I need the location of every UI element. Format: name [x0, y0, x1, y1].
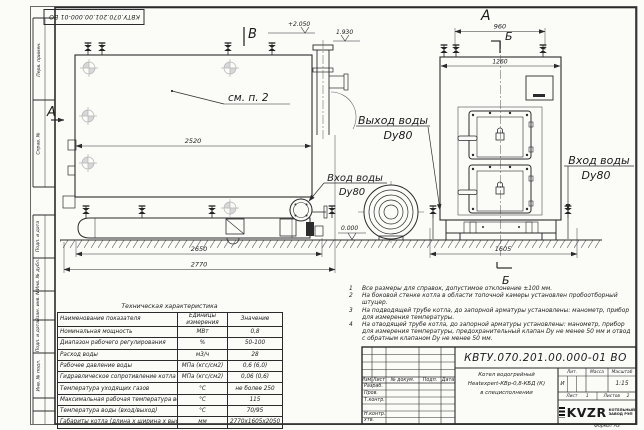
table-row: Температура воды (вход/выход)°С70/95	[58, 406, 283, 417]
outlet-dn: Dy80	[384, 129, 413, 142]
table-row: Диапазон рабочего регулирования%50-100	[58, 338, 283, 349]
inlet-label-side: Вход воды	[327, 173, 383, 184]
tech-table: Наименование показателя Единицы измерени…	[57, 312, 283, 429]
tb-row-tkontr: Т.контр.	[364, 397, 394, 404]
margin-cell-inv-podl: Инв. № подл.	[33, 353, 45, 398]
table-row: Гидравлическое сопротивление котлаМПа (к…	[58, 372, 283, 383]
note-2: 2На боковой стенке котла в области топоч…	[349, 293, 633, 307]
margin-cell-vzam-inv: Взам. инв. №	[33, 291, 45, 320]
product-name: Котел водогрейный Heatexpert-КВр-0,8-КБД…	[456, 369, 557, 400]
margin-cell-podp-data-2: Подп. и дата	[33, 320, 45, 353]
table-row: Расход водым3/ч28	[58, 349, 283, 360]
margin-cell-inv-dubl: Инв. № дубл.	[33, 258, 45, 291]
top-stamp-doc-number: КВТУ.070.201.00.000-01 ВО	[44, 9, 144, 24]
view-label-a-front: А	[480, 8, 491, 24]
tb-col-data: Дата	[441, 377, 455, 383]
doc-number: КВТУ.070.201.00.000-01 ВО	[456, 348, 635, 367]
inlet-dn-front: Dy80	[582, 169, 611, 182]
tb-mass-label: Масса	[586, 368, 608, 376]
table-row: Температура уходящих газов°Сне более 250	[58, 383, 283, 394]
tb-scale-value: 1:15	[608, 376, 636, 392]
view-label-a-left: А	[46, 105, 56, 120]
table-row: Максимальная рабочая температура воды°С1…	[58, 394, 283, 405]
tb-row-blank	[364, 404, 394, 411]
tb-row-razrab: Разраб.	[364, 383, 394, 390]
logo-bars-icon	[559, 407, 565, 418]
logo-text: KVZR	[567, 405, 607, 420]
table-row: Габариты котла (длина х ширина х высота)…	[58, 417, 283, 428]
outlet-label: Выход воды	[358, 114, 428, 127]
tb-lit-label: Лит.	[558, 368, 586, 376]
tb-col-podp: Подп.	[419, 377, 441, 383]
inlet-dn-side: Dy80	[339, 187, 365, 198]
tb-row-utv: Утв.	[364, 418, 394, 425]
burner-fan	[358, 181, 424, 243]
tb-scale-label: Масштаб	[608, 368, 636, 376]
tech-table-title: Техническая характеристика	[57, 303, 282, 310]
section-marks	[51, 27, 512, 268]
elevation-top: +2.050	[288, 21, 310, 28]
see-item-callout: см. п. 2	[228, 92, 269, 104]
front-view	[433, 40, 568, 256]
table-row: Рабочее давление водыМПа (кгс/см2)0,6 (6…	[58, 360, 283, 371]
tech-header-units: Единицы измерения	[178, 313, 228, 327]
inlet-label-front: Вход воды	[568, 154, 630, 167]
section-label-b-top: Б	[505, 30, 513, 43]
table-row: Номинальная мощностьМВт0,8	[58, 327, 283, 338]
note-3: 3На подводящей трубе котла, до запорной …	[349, 308, 633, 322]
tb-lit-value: И	[558, 376, 567, 392]
tech-header-name: Наименование показателя	[58, 313, 178, 327]
dim-2650: 2650	[191, 245, 208, 253]
margin-cell-perv-primen: Перв. примен.	[33, 18, 45, 100]
valve-icons-side	[82, 43, 336, 218]
dim-2520: 2520	[185, 137, 202, 145]
dim-1260: 1260	[492, 59, 507, 66]
tb-sheets-cell: Листов2	[597, 392, 636, 400]
dim-1605: 1605	[495, 245, 512, 253]
sheet: { "sheet": { "format_label": "Формат А3"…	[0, 0, 644, 430]
datum-symbols	[79, 59, 239, 217]
tech-header-row: Наименование показателя Единицы измерени…	[58, 313, 283, 327]
dim-2770: 2770	[191, 261, 208, 269]
note-4: 4На отводящей трубе котла, до запорной а…	[349, 322, 633, 344]
note-1: 1Все размеры для справок, допустимое отк…	[349, 286, 633, 293]
tb-row-prov: Пров.	[364, 390, 394, 397]
dim-960: 960	[494, 23, 506, 31]
tb-sheet-cell: Лист1	[558, 392, 597, 400]
company-logo: KVZR КОТЕЛЬНЫЙ ЗАВОД РЭП	[559, 400, 635, 424]
company-name: КОТЕЛЬНЫЙ ЗАВОД РЭП	[609, 408, 635, 416]
tech-header-value: Значение	[228, 313, 283, 327]
notes-block: 1Все размеры для справок, допустимое отк…	[349, 286, 633, 344]
format-label: Формат А3	[578, 424, 636, 430]
margin-cell-podp-data-1: Подп. и дата	[33, 215, 45, 258]
view-label-b: В	[248, 27, 257, 42]
margin-cell-sprav-no: Справ. №	[33, 100, 45, 187]
ground-line	[60, 240, 602, 248]
elevation-zero: 0.000	[341, 225, 358, 232]
elevation-pipe: 1.930	[336, 29, 353, 36]
